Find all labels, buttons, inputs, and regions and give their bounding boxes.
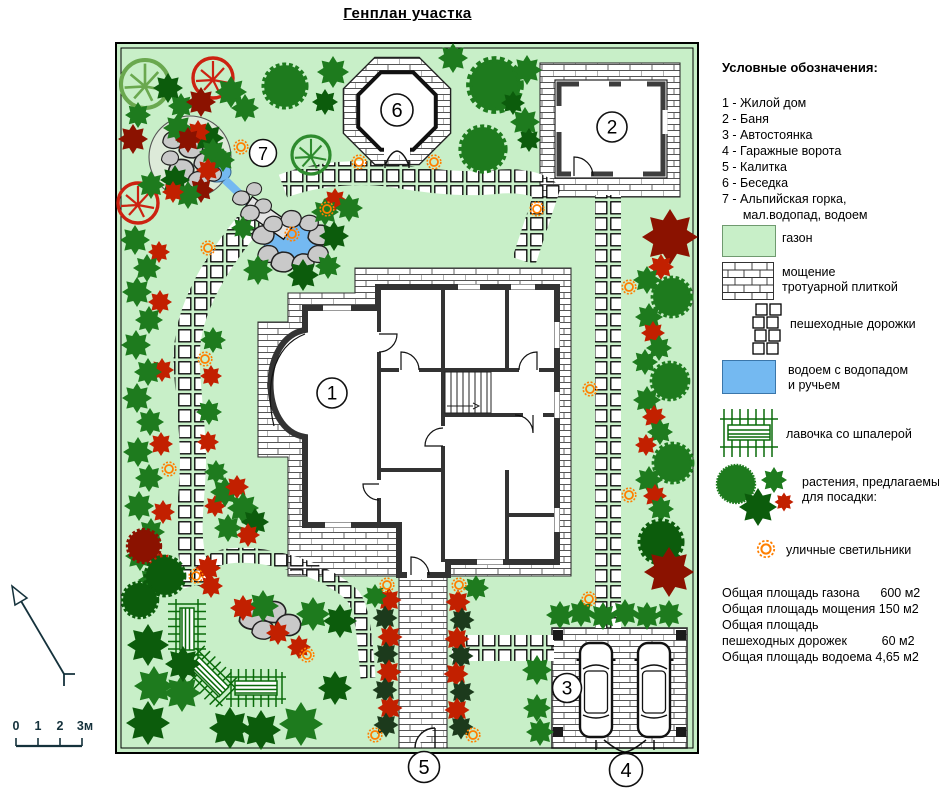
legend-item: 2 - Баня bbox=[722, 111, 868, 127]
legend-item: 3 - Автостоянка bbox=[722, 127, 868, 143]
scale-label: 0 bbox=[13, 719, 20, 733]
legend-item: 5 - Калитка bbox=[722, 159, 868, 175]
marker-gate: 5 bbox=[409, 752, 440, 783]
stairs bbox=[445, 372, 491, 413]
legend-item: 7 - Альпийская горка, мал.водопад, водое… bbox=[722, 191, 868, 223]
scale-label: 1 bbox=[35, 719, 42, 733]
marker-garage: 4 bbox=[610, 754, 643, 787]
legend: Условные обозначения: 1 - Жилой дом 2 - … bbox=[710, 55, 938, 765]
pond-swatch bbox=[722, 360, 776, 394]
stat-line: Общая площадь bbox=[722, 617, 920, 633]
svg-text:3: 3 bbox=[562, 679, 573, 700]
gate-path bbox=[399, 576, 447, 748]
gazebo-entrance bbox=[384, 143, 410, 155]
lamps-label: уличные светильники bbox=[786, 543, 911, 558]
scale-label: 3м bbox=[77, 719, 93, 733]
svg-text:7: 7 bbox=[258, 144, 268, 164]
page: Генплан участка bbox=[0, 0, 939, 792]
marker-house: 1 bbox=[317, 378, 347, 408]
paving-swatch bbox=[722, 262, 774, 300]
stat-line: Общая площадь газона 600 м2 bbox=[722, 585, 920, 601]
page-title: Генплан участка bbox=[115, 5, 700, 22]
legend-item: 1 - Жилой дом bbox=[722, 95, 868, 111]
paving-label: мощение тротуарной плиткой bbox=[782, 265, 898, 295]
bench-swatch bbox=[716, 407, 782, 459]
svg-text:2: 2 bbox=[607, 118, 618, 139]
svg-text:5: 5 bbox=[418, 757, 429, 779]
svg-text:1: 1 bbox=[327, 384, 338, 405]
legend-list: 1 - Жилой дом 2 - Баня 3 - Автостоянка 4… bbox=[722, 95, 868, 223]
site-plan: 1 2 3 6 7 5 4 bbox=[113, 40, 705, 792]
bench-label: лавочка со шпалерой bbox=[786, 427, 912, 442]
stat-line: Общая площадь водоема 4,65 м2 bbox=[722, 649, 920, 665]
walkways-label: пешеходные дорожки bbox=[790, 317, 916, 332]
scale-bar: 0 1 2 3м bbox=[4, 716, 114, 756]
stat-line: Общая площадь мощения 150 м2 bbox=[722, 601, 920, 617]
lawn-swatch bbox=[722, 225, 776, 257]
pond-label: водоем с водопадом и ручьем bbox=[788, 363, 908, 393]
marker-banya: 2 bbox=[597, 112, 627, 142]
legend-title: Условные обозначения: bbox=[722, 60, 878, 75]
plants-swatch bbox=[710, 460, 800, 530]
plants-label: растения, предлагаемые для посадки: bbox=[802, 475, 939, 505]
svg-text:6: 6 bbox=[391, 100, 402, 122]
stat-line: пешеходных дорожек 60 м2 bbox=[722, 633, 920, 649]
car-2 bbox=[635, 643, 674, 737]
svg-text:4: 4 bbox=[620, 760, 631, 782]
legend-item: 4 - Гаражные ворота bbox=[722, 143, 868, 159]
area-stats: Общая площадь газона 600 м2 Общая площад… bbox=[722, 585, 920, 665]
lawn-label: газон bbox=[782, 231, 813, 246]
legend-item: 6 - Беседка bbox=[722, 175, 868, 191]
lamp-swatch bbox=[754, 537, 778, 561]
marker-alpine: 7 bbox=[250, 140, 277, 167]
walkways-swatch bbox=[752, 303, 784, 357]
north-arrow bbox=[2, 582, 92, 692]
marker-parking: 3 bbox=[553, 674, 582, 703]
marker-gazebo: 6 bbox=[381, 94, 413, 126]
scale-label: 2 bbox=[57, 719, 64, 733]
car-1 bbox=[577, 643, 616, 737]
